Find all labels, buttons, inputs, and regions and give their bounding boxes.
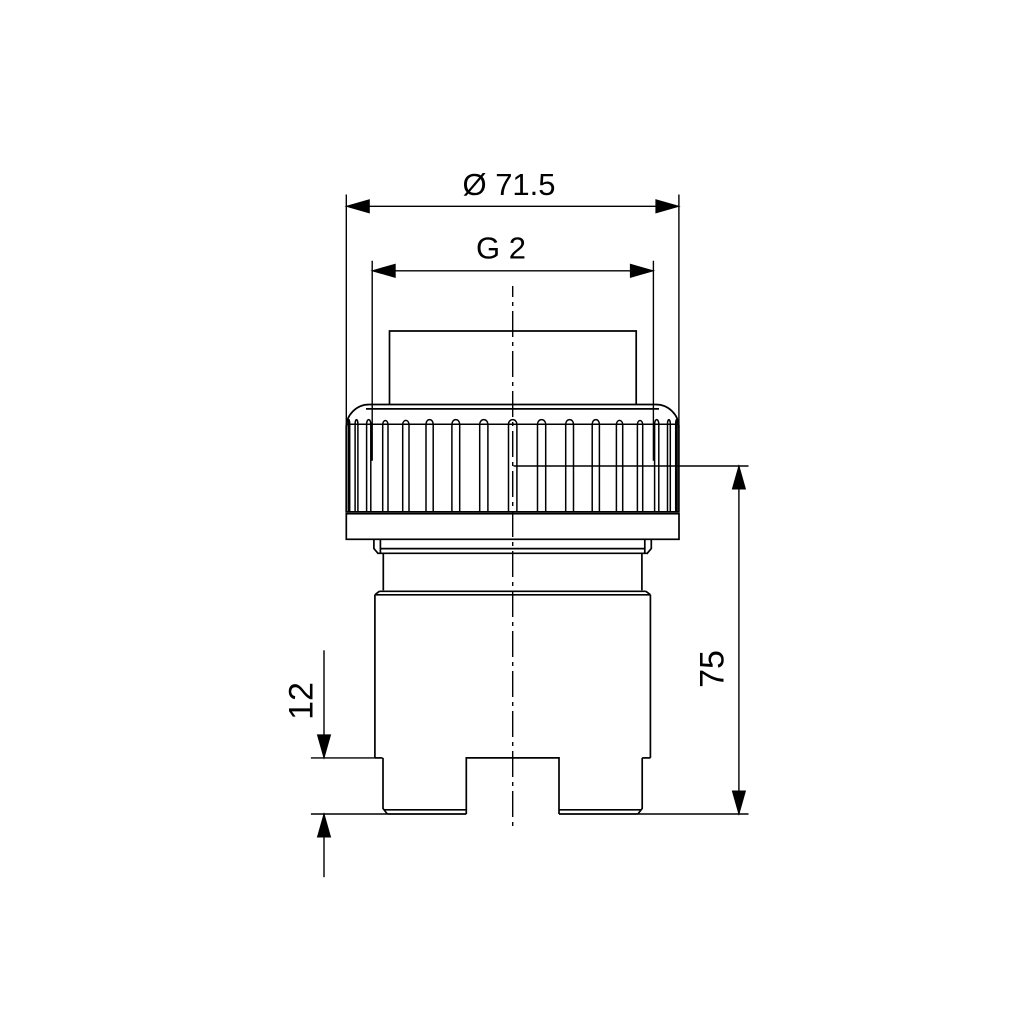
svg-text:G 2: G 2 [476, 231, 526, 266]
svg-text:12: 12 [283, 682, 321, 720]
svg-text:75: 75 [694, 650, 732, 688]
svg-text:Ø 71.5: Ø 71.5 [462, 167, 555, 202]
